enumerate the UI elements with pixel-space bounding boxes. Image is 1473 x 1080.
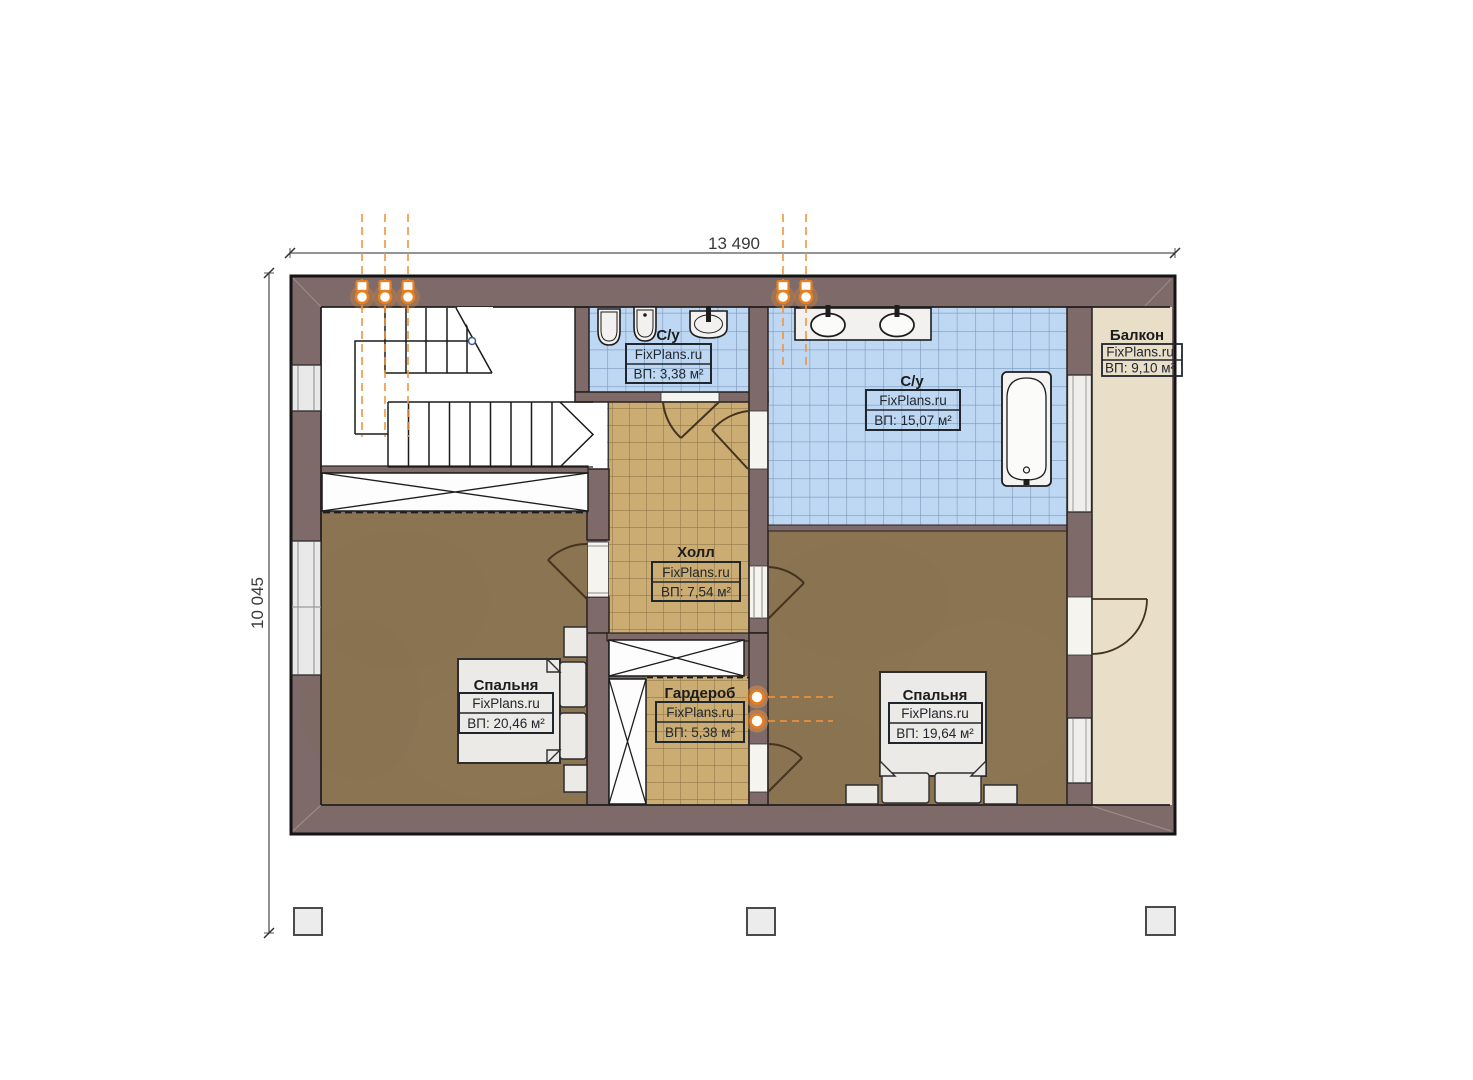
svg-text:ВП: 9,10 м²: ВП: 9,10 м² (1105, 361, 1176, 376)
svg-text:Балкон: Балкон (1110, 327, 1164, 344)
svg-text:FixPlans.ru: FixPlans.ru (635, 347, 703, 362)
svg-text:ВП: 5,38 м²: ВП: 5,38 м² (665, 725, 736, 740)
svg-text:Холл: Холл (677, 544, 715, 561)
svg-text:ВП: 19,64 м²: ВП: 19,64 м² (896, 726, 974, 741)
svg-text:С/у: С/у (656, 327, 680, 344)
svg-text:ВП: 15,07 м²: ВП: 15,07 м² (874, 413, 952, 428)
svg-text:Спальня: Спальня (903, 687, 968, 704)
svg-text:13 490: 13 490 (708, 234, 760, 253)
svg-text:FixPlans.ru: FixPlans.ru (901, 706, 969, 721)
svg-text:FixPlans.ru: FixPlans.ru (879, 393, 947, 408)
svg-text:ВП: 7,54 м²: ВП: 7,54 м² (661, 585, 732, 600)
svg-text:FixPlans.ru: FixPlans.ru (662, 565, 730, 580)
svg-text:FixPlans.ru: FixPlans.ru (666, 705, 734, 720)
svg-text:ВП: 20,46 м²: ВП: 20,46 м² (467, 716, 545, 731)
svg-text:ВП: 3,38 м²: ВП: 3,38 м² (633, 367, 704, 382)
svg-text:С/у: С/у (900, 373, 924, 390)
svg-text:10 045: 10 045 (248, 577, 267, 629)
svg-text:FixPlans.ru: FixPlans.ru (1106, 345, 1174, 360)
svg-text:FixPlans.ru: FixPlans.ru (472, 696, 540, 711)
svg-text:Гардероб: Гардероб (665, 685, 736, 702)
svg-text:Спальня: Спальня (474, 677, 539, 694)
